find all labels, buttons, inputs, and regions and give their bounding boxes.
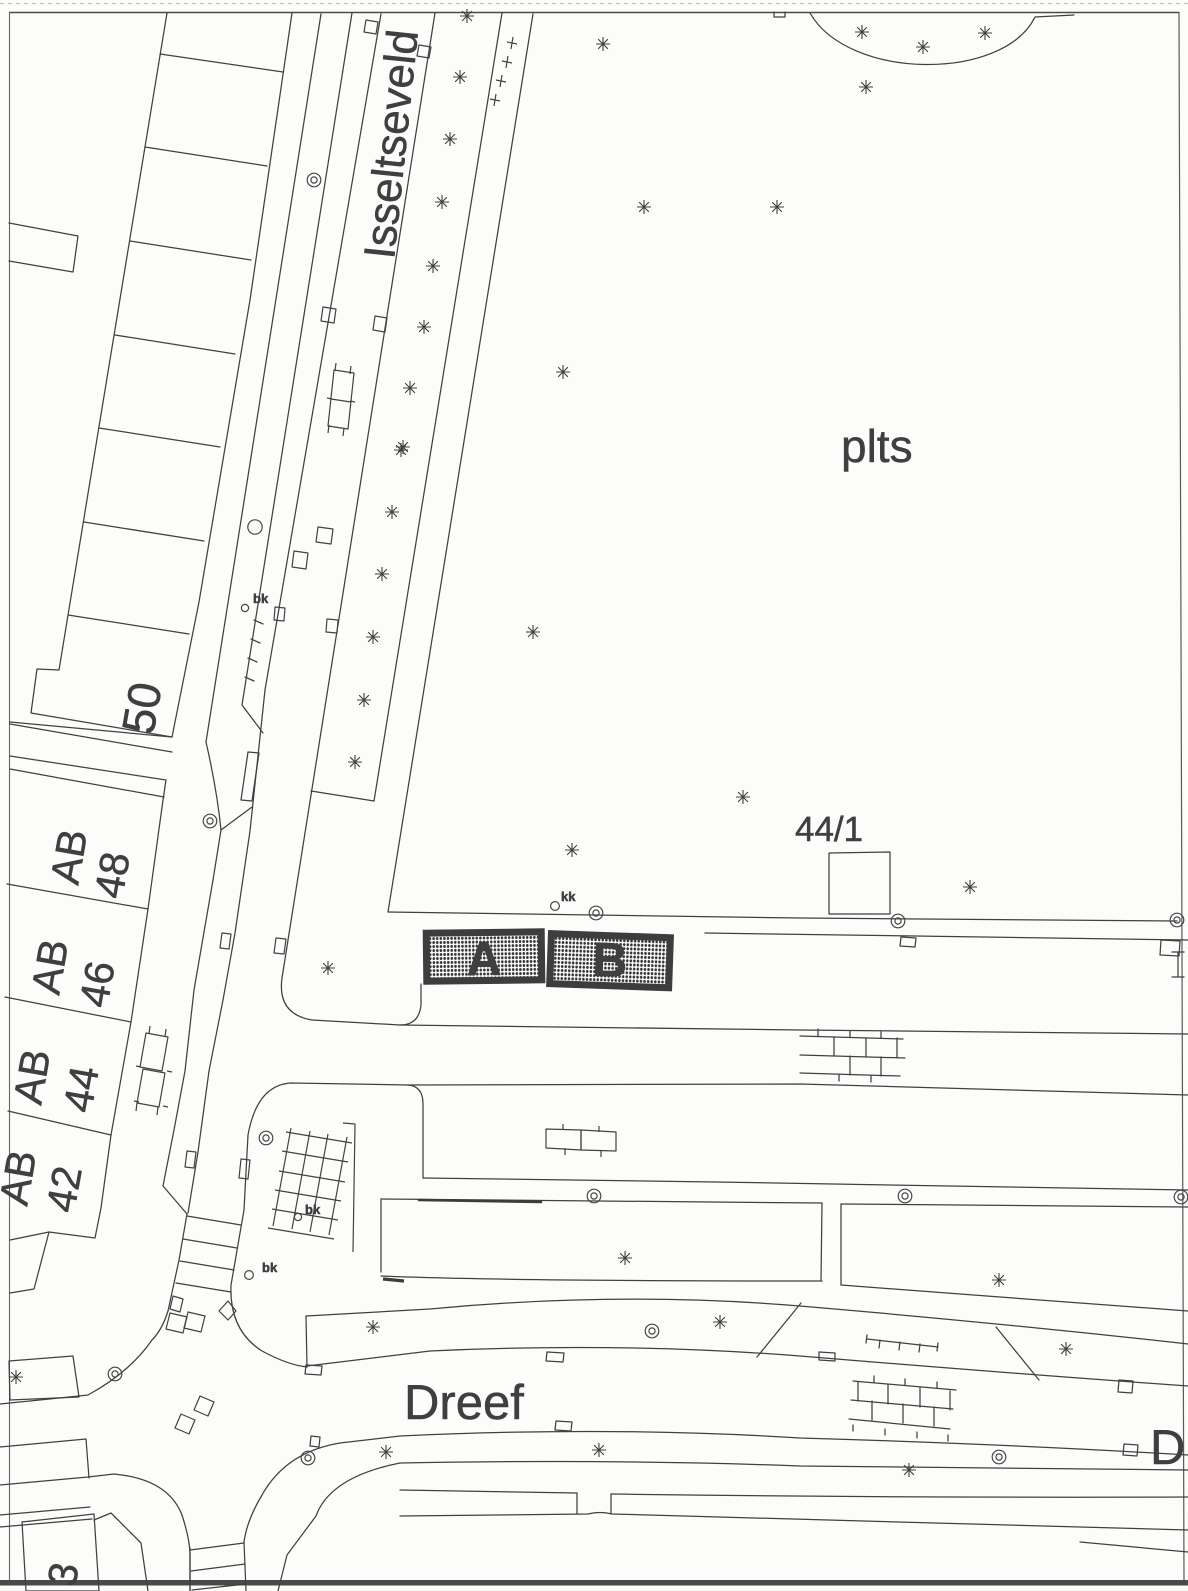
svg-text:48: 48 [86, 849, 139, 902]
svg-text:bk: bk [253, 591, 269, 606]
svg-text:D: D [1150, 1421, 1185, 1475]
svg-text:44/1: 44/1 [795, 810, 863, 849]
svg-text:42: 42 [38, 1163, 91, 1216]
svg-text:44: 44 [55, 1063, 108, 1116]
svg-text:46: 46 [71, 958, 124, 1011]
svg-text:kk: kk [561, 889, 576, 904]
svg-text:plts: plts [841, 420, 913, 472]
svg-text:B: B [592, 934, 629, 988]
svg-text:AB: AB [5, 1046, 60, 1108]
svg-text:Dreef: Dreef [404, 1376, 524, 1430]
svg-text:50: 50 [112, 678, 172, 737]
svg-text:bk: bk [262, 1260, 278, 1275]
svg-text:AB: AB [23, 936, 78, 998]
svg-text:A: A [466, 933, 501, 986]
